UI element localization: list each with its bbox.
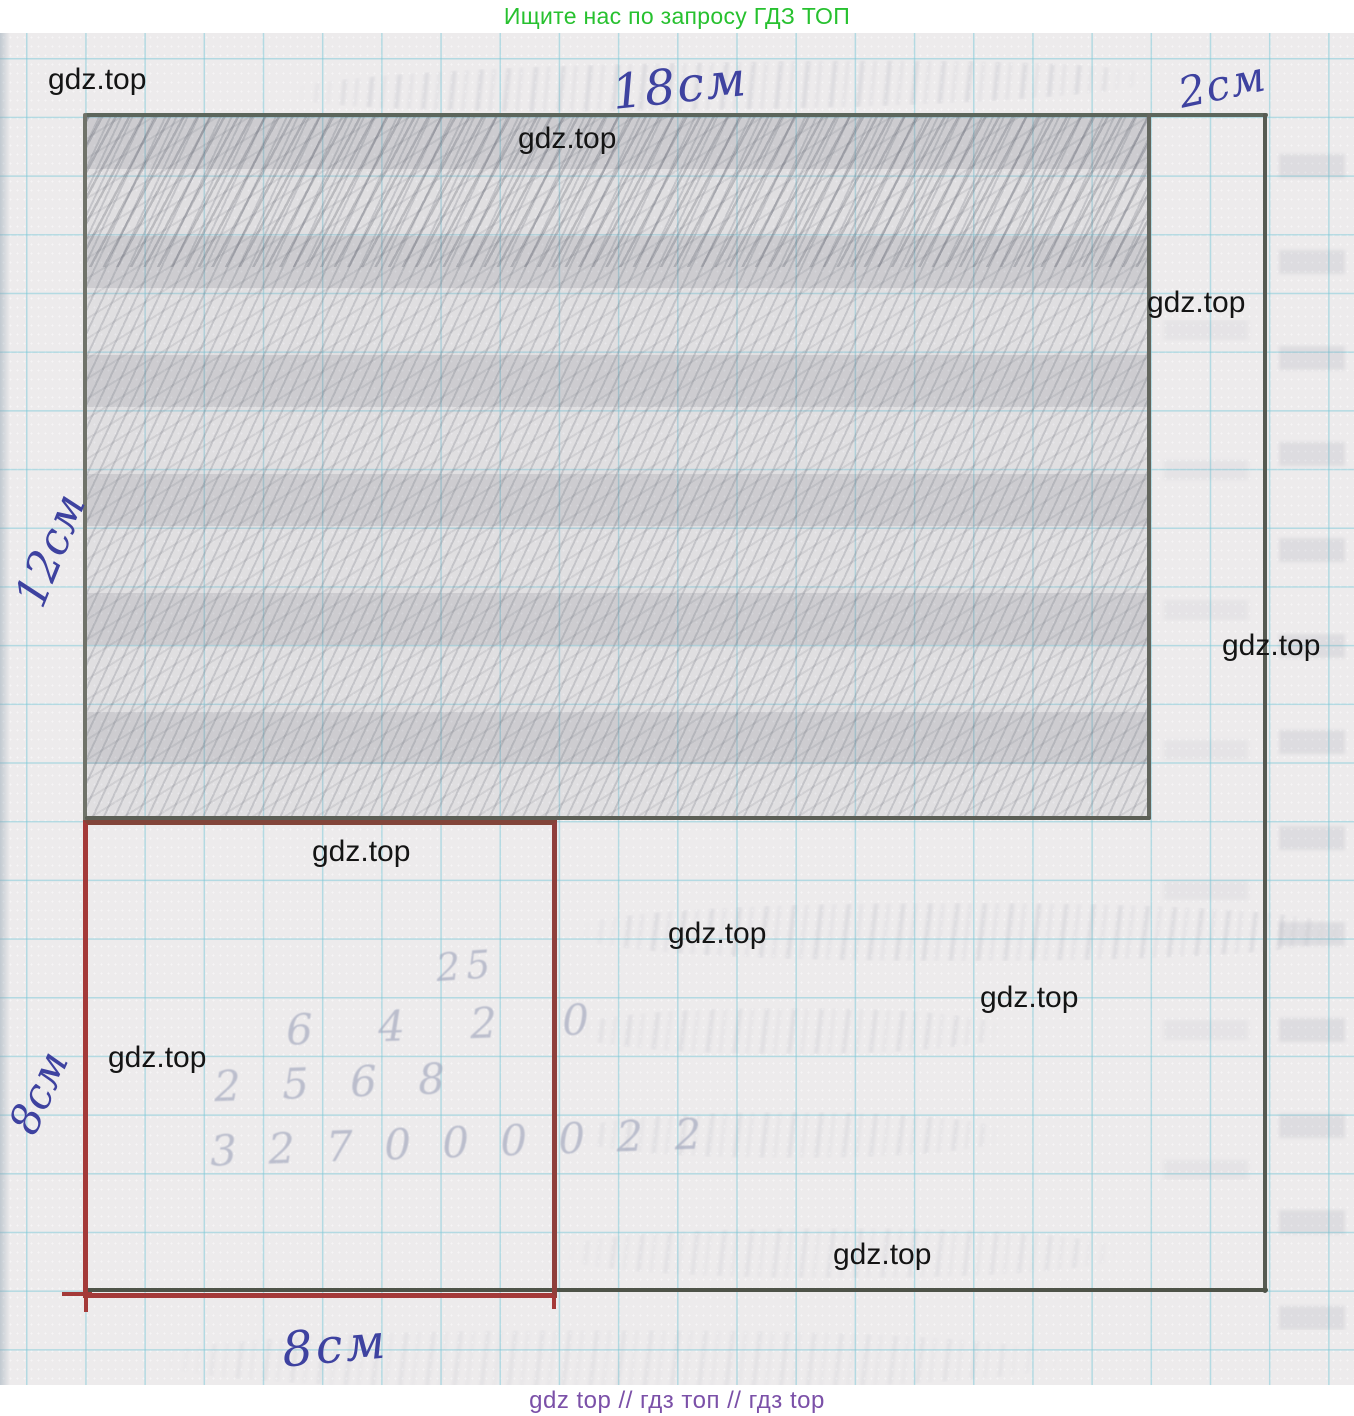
watermark: gdz.top xyxy=(1222,629,1320,663)
ghost-writing-smudge xyxy=(575,1008,1005,1054)
shaded-rectangle-dense-hatching xyxy=(87,117,1147,267)
watermark: gdz.top xyxy=(1147,286,1245,320)
watermark: gdz.top xyxy=(48,63,146,97)
promo-footer-text: gdz top // гдз топ // гдз top xyxy=(529,1387,825,1415)
watermark: gdz.top xyxy=(668,917,766,951)
dimension-label-8cm-bottom: 8см xyxy=(280,1313,391,1378)
figure-left-edge xyxy=(83,113,87,824)
watermark: gdz.top xyxy=(312,835,410,869)
watermark: gdz.top xyxy=(980,981,1078,1015)
red-square-corner-tick xyxy=(62,1292,92,1296)
promo-footer: gdz top // гдз топ // гдз top xyxy=(0,1385,1354,1416)
paper-edge-shadow xyxy=(0,33,10,1385)
red-square-corner-tick xyxy=(552,1297,556,1309)
red-square-corner-tick xyxy=(84,1297,88,1312)
figure-right-edge xyxy=(1263,113,1267,1293)
watermark: gdz.top xyxy=(833,1238,931,1272)
ghost-writing-smudge xyxy=(1160,320,1252,1180)
ghost-writing-margin-column xyxy=(1276,150,1348,1330)
rectangle-right-edge xyxy=(1147,113,1151,820)
ghost-number: 2 5 6 8 xyxy=(213,1054,460,1112)
ghost-number: 25 xyxy=(435,942,498,990)
watermark: gdz.top xyxy=(518,122,616,156)
promo-header: Ищите нас по запросу ГДЗ ТОП xyxy=(0,0,1354,33)
notebook-scan-page: Ищите нас по запросу ГДЗ ТОП 25 6 4 2 0 … xyxy=(0,0,1354,1416)
watermark: gdz.top xyxy=(108,1041,206,1075)
promo-header-text: Ищите нас по запросу ГДЗ ТОП xyxy=(504,3,850,30)
